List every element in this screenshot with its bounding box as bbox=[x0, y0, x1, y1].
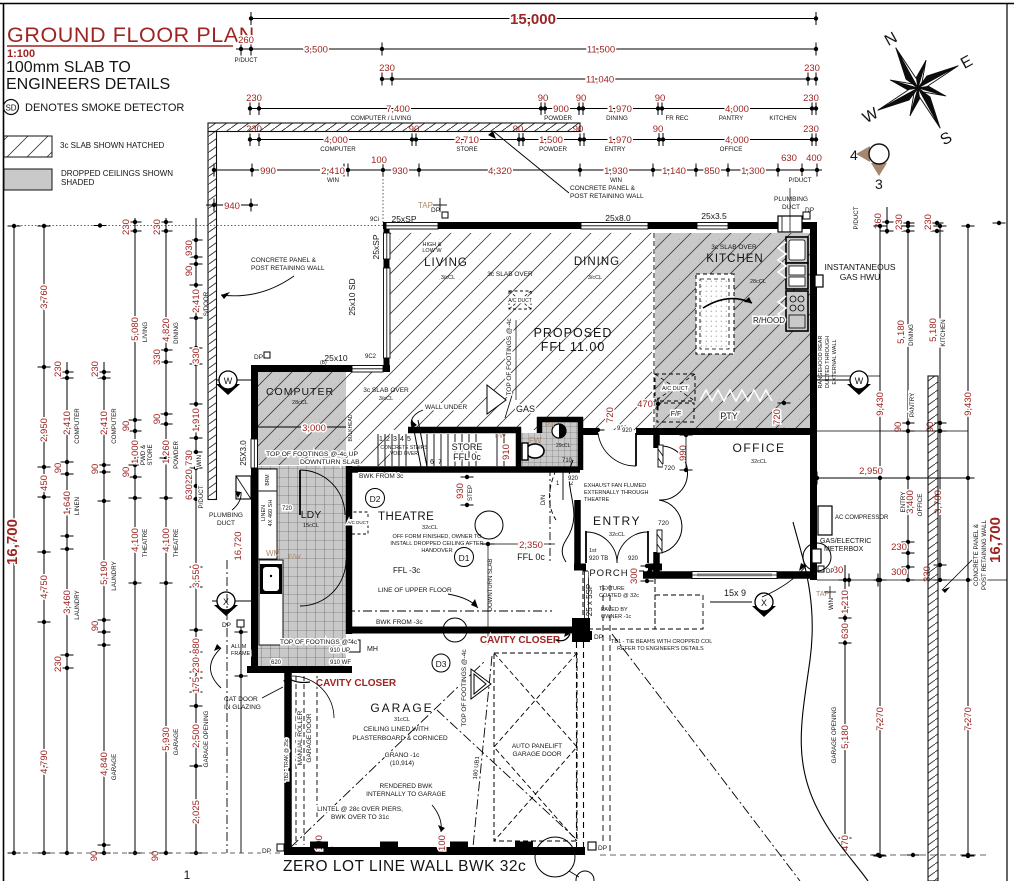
svg-text:WIN: WIN bbox=[327, 177, 339, 184]
svg-text:DUCT: DUCT bbox=[217, 520, 235, 527]
svg-text:OFFICE: OFFICE bbox=[733, 441, 786, 455]
svg-text:TOP OF FOOTINGS @-4c UP: TOP OF FOOTINGS @-4c UP bbox=[266, 451, 358, 458]
svg-text:6: 6 bbox=[430, 459, 434, 466]
svg-text:5,180: 5,180 bbox=[896, 320, 907, 344]
svg-text:WIN: WIN bbox=[828, 598, 835, 610]
svg-text:9Ci: 9Ci bbox=[370, 217, 379, 223]
svg-text:630: 630 bbox=[184, 484, 195, 500]
svg-text:25xSP: 25xSP bbox=[391, 214, 416, 224]
svg-text:230: 230 bbox=[121, 219, 132, 235]
svg-text:GAS/ELECTRIC: GAS/ELECTRIC bbox=[820, 538, 871, 545]
svg-text:ENTRY: ENTRY bbox=[605, 146, 626, 153]
svg-text:LINEN: LINEN bbox=[74, 497, 81, 515]
svg-text:GARAGE: GARAGE bbox=[111, 754, 118, 780]
svg-text:DP: DP bbox=[805, 207, 814, 214]
svg-text:2,350: 2,350 bbox=[519, 540, 543, 551]
svg-text:90: 90 bbox=[152, 414, 163, 425]
svg-text:90: 90 bbox=[89, 851, 100, 862]
svg-text:W: W bbox=[855, 376, 864, 386]
svg-text:90: 90 bbox=[538, 93, 549, 104]
svg-text:BWK FROM 3c: BWK FROM 3c bbox=[359, 473, 404, 480]
svg-text:7,400: 7,400 bbox=[386, 104, 410, 115]
svg-text:E: E bbox=[958, 53, 976, 73]
svg-text:28cCL: 28cCL bbox=[750, 279, 766, 285]
svg-text:5: 5 bbox=[407, 436, 411, 443]
svg-text:1,300: 1,300 bbox=[741, 166, 765, 177]
svg-text:GRANO -1c: GRANO -1c bbox=[385, 752, 420, 759]
svg-text:7: 7 bbox=[438, 459, 442, 466]
svg-text:2,950: 2,950 bbox=[39, 418, 50, 442]
svg-text:930: 930 bbox=[184, 240, 195, 256]
svg-text:5,080: 5,080 bbox=[130, 317, 141, 341]
svg-text:7,270: 7,270 bbox=[875, 707, 886, 731]
svg-text:3: 3 bbox=[875, 176, 883, 192]
svg-text:X: X bbox=[223, 597, 229, 607]
svg-text:1,910: 1,910 bbox=[191, 408, 202, 432]
svg-text:FFL 0c: FFL 0c bbox=[453, 452, 481, 462]
svg-text:CONCRETE PANEL &: CONCRETE PANEL & bbox=[570, 185, 636, 192]
svg-text:ZERO LOT LINE WALL BWK 32c: ZERO LOT LINE WALL BWK 32c bbox=[283, 858, 526, 875]
svg-text:THEATRE: THEATRE bbox=[173, 529, 180, 557]
svg-text:3,500: 3,500 bbox=[304, 45, 328, 56]
svg-text:15x 9: 15x 9 bbox=[724, 588, 746, 598]
svg-text:9C2: 9C2 bbox=[365, 354, 377, 360]
svg-text:LIVING: LIVING bbox=[142, 322, 149, 342]
svg-text:CAVITY CLOSER: CAVITY CLOSER bbox=[316, 678, 397, 689]
svg-text:POST RETAINING WALL: POST RETAINING WALL bbox=[251, 265, 325, 272]
svg-text:910 WF: 910 WF bbox=[330, 660, 351, 666]
svg-text:11,500: 11,500 bbox=[587, 45, 615, 56]
svg-text:450: 450 bbox=[39, 475, 50, 491]
svg-text:TB2 - TRAK @ 25c: TB2 - TRAK @ 25c bbox=[284, 738, 290, 781]
svg-text:POST RETAINING WALL: POST RETAINING WALL bbox=[981, 519, 988, 590]
svg-text:90: 90 bbox=[655, 93, 666, 104]
svg-text:D/N: D/N bbox=[541, 495, 547, 505]
svg-text:TOP OF FOOTINGS @-4c: TOP OF FOOTINGS @-4c bbox=[461, 649, 468, 727]
svg-text:25x3.5: 25x3.5 bbox=[701, 211, 727, 221]
svg-text:RENDERED BWK: RENDERED BWK bbox=[379, 783, 433, 790]
svg-text:(B): (B) bbox=[320, 360, 327, 366]
svg-text:INSTALL DROPPED CEILING AFTER: INSTALL DROPPED CEILING AFTER bbox=[390, 541, 483, 547]
svg-text:FR REC: FR REC bbox=[665, 115, 689, 122]
svg-text:DP: DP bbox=[598, 845, 607, 852]
svg-text:11,040: 11,040 bbox=[586, 75, 614, 86]
svg-text:4,000: 4,000 bbox=[725, 135, 749, 146]
svg-text:3: 3 bbox=[393, 436, 397, 443]
svg-text:PLUMBING: PLUMBING bbox=[774, 196, 808, 203]
svg-text:GROUND FLOOR PLAN: GROUND FLOOR PLAN bbox=[7, 23, 255, 47]
svg-text:230: 230 bbox=[90, 361, 101, 377]
svg-text:DP: DP bbox=[254, 354, 263, 361]
svg-text:230: 230 bbox=[804, 63, 820, 74]
svg-text:CONCRETE PANEL &: CONCRETE PANEL & bbox=[973, 523, 980, 586]
svg-text:32cCL: 32cCL bbox=[609, 532, 625, 538]
svg-text:OFFICE: OFFICE bbox=[720, 146, 743, 153]
svg-text:LDY: LDY bbox=[301, 509, 321, 521]
svg-text:3c SLAB OVER: 3c SLAB OVER bbox=[711, 244, 757, 251]
svg-text:230: 230 bbox=[152, 219, 163, 235]
svg-text:920 TB: 920 TB bbox=[589, 556, 608, 562]
svg-text:920: 920 bbox=[628, 556, 639, 562]
svg-text:15cCL: 15cCL bbox=[303, 523, 319, 529]
svg-text:90: 90 bbox=[576, 93, 587, 104]
svg-text:PAVED BY: PAVED BY bbox=[601, 607, 628, 613]
svg-text:DP: DP bbox=[262, 848, 271, 855]
svg-text:5,190: 5,190 bbox=[99, 561, 110, 585]
svg-text:720: 720 bbox=[772, 409, 783, 425]
svg-text:4,000: 4,000 bbox=[725, 104, 749, 115]
svg-text:1,970: 1,970 bbox=[608, 135, 632, 146]
svg-text:COATED @ 32c: COATED @ 32c bbox=[599, 593, 639, 599]
svg-text:3,000: 3,000 bbox=[302, 423, 326, 434]
svg-text:2,410: 2,410 bbox=[191, 289, 202, 313]
svg-text:OFFICE: OFFICE bbox=[917, 494, 924, 517]
svg-text:PANTRY: PANTRY bbox=[909, 393, 916, 418]
svg-text:4,820: 4,820 bbox=[161, 318, 172, 342]
svg-text:REFER TO ENGINEER'S DETAILS: REFER TO ENGINEER'S DETAILS bbox=[617, 646, 704, 652]
svg-text:D1: D1 bbox=[459, 553, 470, 563]
svg-text:90: 90 bbox=[53, 463, 64, 474]
svg-text:DOWNTURN SLAB: DOWNTURN SLAB bbox=[488, 559, 494, 612]
svg-text:1,140: 1,140 bbox=[662, 166, 686, 177]
svg-text:25 x 5SP: 25 x 5SP bbox=[585, 584, 594, 616]
svg-text:470: 470 bbox=[637, 399, 653, 410]
svg-text:PTY: PTY bbox=[720, 411, 738, 421]
svg-text:BWK OVER TO 31c: BWK OVER TO 31c bbox=[331, 814, 390, 821]
svg-text:X: X bbox=[761, 598, 767, 608]
svg-text:3c SLAB OVER: 3c SLAB OVER bbox=[363, 387, 409, 394]
svg-text:15,000: 15,000 bbox=[510, 11, 556, 28]
svg-text:BRM: BRM bbox=[265, 474, 271, 485]
svg-text:2,950: 2,950 bbox=[859, 466, 883, 477]
svg-text:LINE OF UPPER FLOOR: LINE OF UPPER FLOOR bbox=[378, 587, 452, 594]
svg-text:1: 1 bbox=[379, 436, 383, 443]
svg-text:FFL 11.00: FFL 11.00 bbox=[541, 340, 606, 354]
svg-text:DINING: DINING bbox=[606, 115, 628, 122]
svg-text:PROPOSED: PROPOSED bbox=[534, 326, 613, 340]
svg-text:STORE: STORE bbox=[147, 444, 154, 465]
svg-text:90: 90 bbox=[150, 851, 161, 862]
svg-text:3,550: 3,550 bbox=[191, 564, 202, 588]
svg-text:THEATRE: THEATRE bbox=[378, 511, 434, 523]
svg-text:DUCT: DUCT bbox=[782, 204, 800, 211]
svg-text:ALUM: ALUM bbox=[231, 644, 247, 650]
svg-text:P/DUCT: P/DUCT bbox=[853, 206, 860, 229]
svg-text:LAUNDRY: LAUNDRY bbox=[111, 561, 118, 590]
svg-text:1st: 1st bbox=[589, 548, 597, 554]
svg-text:630: 630 bbox=[840, 623, 851, 639]
svg-text:D3: D3 bbox=[436, 659, 447, 669]
svg-text:GARAGE DOOR: GARAGE DOOR bbox=[512, 751, 561, 758]
svg-text:16,700: 16,700 bbox=[987, 517, 1004, 563]
svg-text:DROPPED CEILINGS SHOWN: DROPPED CEILINGS SHOWN bbox=[61, 169, 173, 178]
svg-text:DP: DP bbox=[431, 207, 440, 214]
svg-text:230: 230 bbox=[803, 93, 819, 104]
svg-text:90: 90 bbox=[121, 421, 132, 432]
svg-text:880: 880 bbox=[191, 638, 202, 654]
svg-text:16,700: 16,700 bbox=[4, 519, 21, 565]
svg-text:COMPUTER: COMPUTER bbox=[266, 386, 334, 398]
svg-text:ENGINEERS DETAILS: ENGINEERS DETAILS bbox=[6, 76, 170, 93]
svg-text:2,410: 2,410 bbox=[62, 411, 73, 435]
svg-text:930: 930 bbox=[455, 483, 466, 499]
svg-text:4: 4 bbox=[400, 436, 404, 443]
svg-text:THEATRE: THEATRE bbox=[142, 529, 149, 557]
svg-text:25xSP: 25xSP bbox=[371, 234, 381, 259]
svg-text:DENOTES SMOKE DETECTOR: DENOTES SMOKE DETECTOR bbox=[25, 102, 184, 114]
svg-text:4,840: 4,840 bbox=[99, 752, 110, 776]
svg-text:D2: D2 bbox=[370, 494, 381, 504]
svg-text:300: 300 bbox=[629, 568, 640, 584]
svg-text:A/C DUCT: A/C DUCT bbox=[508, 298, 532, 304]
svg-text:230: 230 bbox=[379, 63, 395, 74]
svg-text:230: 230 bbox=[891, 542, 907, 553]
svg-text:260: 260 bbox=[238, 35, 254, 46]
svg-text:2: 2 bbox=[386, 436, 390, 443]
svg-text:A/C DUCT: A/C DUCT bbox=[662, 386, 689, 392]
svg-text:910 UP: 910 UP bbox=[330, 648, 350, 654]
svg-text:POWDER: POWDER bbox=[173, 441, 180, 469]
svg-text:920: 920 bbox=[568, 476, 579, 482]
svg-text:HANDOVER: HANDOVER bbox=[421, 548, 452, 554]
svg-text:920: 920 bbox=[622, 428, 633, 434]
svg-text:3,460: 3,460 bbox=[62, 590, 73, 614]
svg-text:90: 90 bbox=[90, 464, 101, 475]
svg-text:LINEN: LINEN bbox=[261, 505, 267, 521]
svg-text:720: 720 bbox=[658, 520, 669, 527]
svg-text:3/cCL: 3/cCL bbox=[441, 275, 455, 281]
svg-text:9,430: 9,430 bbox=[875, 392, 886, 416]
svg-text:PLASTERBOARD & CORNICED: PLASTERBOARD & CORNICED bbox=[352, 735, 448, 742]
svg-text:5,930: 5,930 bbox=[161, 727, 172, 751]
svg-text:F/W: F/W bbox=[288, 554, 301, 561]
svg-text:KITCHEN: KITCHEN bbox=[940, 319, 947, 346]
svg-text:940: 940 bbox=[224, 201, 240, 212]
svg-text:2,500: 2,500 bbox=[191, 724, 202, 748]
svg-text:F/F: F/F bbox=[671, 411, 682, 418]
svg-text:POWDER: POWDER bbox=[539, 146, 567, 153]
svg-text:EXHAUST FAN FLUMED: EXHAUST FAN FLUMED bbox=[584, 483, 646, 489]
svg-text:KITCHEN: KITCHEN bbox=[769, 115, 796, 122]
svg-text:230: 230 bbox=[191, 657, 202, 673]
svg-text:1,930: 1,930 bbox=[604, 166, 628, 177]
svg-text:GAS HWU: GAS HWU bbox=[840, 272, 881, 282]
svg-text:4,750: 4,750 bbox=[39, 575, 50, 599]
svg-text:1,500: 1,500 bbox=[539, 135, 563, 146]
svg-text:VOID OVER: VOID OVER bbox=[390, 451, 418, 457]
svg-text:LOW W: LOW W bbox=[422, 248, 442, 254]
svg-text:1,260: 1,260 bbox=[161, 440, 172, 464]
svg-text:RW: RW bbox=[545, 423, 555, 429]
svg-text:P/DUCT: P/DUCT bbox=[234, 57, 257, 64]
svg-text:OWNER -1c: OWNER -1c bbox=[601, 614, 632, 620]
svg-text:EXTERNAL WALL: EXTERNAL WALL bbox=[832, 339, 838, 384]
svg-text:710: 710 bbox=[562, 458, 573, 464]
svg-text:3c SLAB SHOWN HATCHED: 3c SLAB SHOWN HATCHED bbox=[60, 141, 165, 150]
svg-text:INTERNALLY TO GARAGE: INTERNALLY TO GARAGE bbox=[366, 791, 446, 798]
svg-text:COMPUTER: COMPUTER bbox=[74, 408, 81, 444]
svg-text:PANTRY: PANTRY bbox=[719, 115, 744, 122]
svg-text:620: 620 bbox=[271, 660, 282, 666]
svg-text:DP: DP bbox=[826, 569, 834, 575]
svg-text:330: 330 bbox=[191, 348, 202, 364]
svg-text:25x10 SD: 25x10 SD bbox=[347, 278, 357, 315]
svg-text:930: 930 bbox=[392, 166, 408, 177]
svg-text:3c SLAB OVER: 3c SLAB OVER bbox=[487, 271, 533, 278]
svg-text:EXTERNALLY THROUGH: EXTERNALLY THROUGH bbox=[584, 490, 649, 496]
svg-text:2,410: 2,410 bbox=[321, 166, 345, 177]
svg-text:100: 100 bbox=[371, 155, 387, 166]
svg-text:SD: SD bbox=[5, 104, 16, 113]
svg-text:RANGEHOOD REAR: RANGEHOOD REAR bbox=[818, 336, 824, 389]
svg-text:OFF FORM FINISHED, OWNER TO: OFF FORM FINISHED, OWNER TO bbox=[392, 534, 482, 540]
svg-text:COMPUTER / LIVING: COMPUTER / LIVING bbox=[351, 115, 412, 122]
svg-text:7,270: 7,270 bbox=[963, 707, 974, 731]
svg-text:1,970: 1,970 bbox=[608, 104, 632, 115]
svg-text:S: S bbox=[938, 129, 956, 149]
svg-text:230: 230 bbox=[246, 93, 262, 104]
svg-text:CEILING LINED WITH: CEILING LINED WITH bbox=[363, 726, 429, 733]
svg-text:5,180: 5,180 bbox=[840, 725, 851, 749]
svg-text:PWD &: PWD & bbox=[140, 444, 147, 465]
svg-text:SHADED: SHADED bbox=[61, 178, 95, 187]
svg-text:90: 90 bbox=[184, 266, 195, 277]
svg-text:CONCRETE PANEL &: CONCRETE PANEL & bbox=[251, 257, 317, 264]
svg-text:LIVING: LIVING bbox=[424, 257, 468, 269]
svg-text:990: 990 bbox=[260, 166, 276, 177]
svg-text:2,410: 2,410 bbox=[99, 411, 110, 435]
svg-text:AUTO PANELIFT: AUTO PANELIFT bbox=[512, 743, 562, 750]
svg-text:BWK FROM -3c: BWK FROM -3c bbox=[376, 619, 423, 626]
svg-text:THEATRE: THEATRE bbox=[584, 497, 610, 503]
svg-text:850: 850 bbox=[704, 166, 720, 177]
svg-text:25x10: 25x10 bbox=[324, 353, 347, 363]
svg-text:720: 720 bbox=[282, 506, 293, 512]
svg-text:16,720: 16,720 bbox=[233, 531, 244, 560]
svg-text:230: 230 bbox=[53, 361, 64, 377]
svg-text:P/DUCT: P/DUCT bbox=[788, 177, 811, 184]
svg-text:DOWNTURN SLAB: DOWNTURN SLAB bbox=[300, 459, 360, 466]
svg-text:WIN: WIN bbox=[610, 177, 622, 184]
svg-text:3,400: 3,400 bbox=[905, 490, 916, 514]
svg-text:DINING: DINING bbox=[173, 322, 180, 344]
svg-text:5,180: 5,180 bbox=[928, 318, 939, 342]
svg-text:4,100: 4,100 bbox=[130, 528, 141, 552]
svg-text:730: 730 bbox=[184, 450, 195, 466]
svg-text:32cCL: 32cCL bbox=[422, 525, 438, 531]
svg-text:WALL UNDER: WALL UNDER bbox=[425, 404, 467, 411]
svg-text:PLUMBING: PLUMBING bbox=[209, 512, 243, 519]
svg-text:2,710: 2,710 bbox=[455, 135, 479, 146]
svg-text:WIN: WIN bbox=[196, 455, 203, 467]
svg-text:GARAGE OPENING: GARAGE OPENING bbox=[203, 710, 210, 767]
svg-text:1: 1 bbox=[184, 868, 191, 881]
svg-text:4: 4 bbox=[850, 147, 858, 163]
svg-text:9,430: 9,430 bbox=[963, 392, 974, 416]
svg-text:PORCH: PORCH bbox=[589, 568, 628, 579]
svg-text:330: 330 bbox=[152, 349, 163, 365]
svg-text:4,000: 4,000 bbox=[324, 135, 348, 146]
svg-text:POST RETAINING WALL: POST RETAINING WALL bbox=[570, 193, 644, 200]
svg-text:CAVITY CLOSER: CAVITY CLOSER bbox=[480, 635, 561, 646]
svg-text:990: 990 bbox=[678, 445, 689, 461]
svg-text:230: 230 bbox=[894, 214, 905, 230]
svg-text:4X 460 SH: 4X 460 SH bbox=[268, 500, 274, 527]
svg-text:4,100: 4,100 bbox=[161, 528, 172, 552]
svg-text:90: 90 bbox=[121, 467, 132, 478]
svg-text:32cCL: 32cCL bbox=[751, 459, 767, 465]
svg-text:MH: MH bbox=[367, 646, 378, 653]
svg-text:175: 175 bbox=[191, 677, 202, 693]
svg-text:28cCL: 28cCL bbox=[292, 400, 308, 406]
svg-text:230: 230 bbox=[803, 124, 819, 135]
svg-text:(10,914): (10,914) bbox=[390, 760, 414, 767]
svg-text:COMPUTER: COMPUTER bbox=[111, 408, 118, 444]
svg-text:900: 900 bbox=[553, 104, 569, 115]
svg-text:1,210: 1,210 bbox=[840, 590, 851, 614]
svg-text:FFL 0c: FFL 0c bbox=[517, 552, 545, 562]
svg-text:TOP OF FOOTINGS @-4c: TOP OF FOOTINGS @-4c bbox=[280, 639, 358, 646]
svg-text:720: 720 bbox=[605, 407, 616, 423]
svg-text:25x8.0: 25x8.0 bbox=[605, 213, 631, 223]
svg-text:220: 220 bbox=[184, 469, 195, 485]
svg-text:TOP OF FOOTINGS @-4c: TOP OF FOOTINGS @-4c bbox=[506, 318, 513, 396]
svg-text:FFL -3c: FFL -3c bbox=[393, 566, 420, 575]
svg-text:4,790: 4,790 bbox=[39, 750, 50, 774]
svg-text:LAUNDRY: LAUNDRY bbox=[74, 590, 81, 619]
svg-text:1,640: 1,640 bbox=[62, 491, 73, 515]
svg-text:31cCL: 31cCL bbox=[394, 717, 410, 723]
svg-text:DP: DP bbox=[594, 634, 603, 641]
svg-text:GARAGE DOOR: GARAGE DOOR bbox=[306, 713, 313, 762]
svg-text:910: 910 bbox=[501, 444, 512, 460]
svg-text:FW: FW bbox=[495, 433, 506, 440]
svg-text:GARAGE OPENING: GARAGE OPENING bbox=[831, 706, 838, 763]
svg-text:230: 230 bbox=[923, 214, 934, 230]
svg-text:630: 630 bbox=[781, 153, 797, 164]
svg-text:29cCL: 29cCL bbox=[556, 443, 571, 449]
svg-text:DINING: DINING bbox=[908, 324, 915, 346]
svg-text:LINTEL @ 28c OVER PIERS,: LINTEL @ 28c OVER PIERS, bbox=[317, 806, 403, 813]
svg-text:MANUAL ROLLER: MANUAL ROLLER bbox=[297, 710, 304, 765]
svg-text:GARAGE: GARAGE bbox=[370, 701, 433, 715]
svg-text:2,025: 2,025 bbox=[191, 800, 202, 824]
svg-text:BULKHEAD: BULKHEAD bbox=[348, 414, 354, 441]
svg-text:90: 90 bbox=[653, 124, 664, 135]
svg-text:90: 90 bbox=[90, 621, 101, 632]
svg-text:A/C DUCT: A/C DUCT bbox=[347, 520, 369, 525]
svg-text:DINING: DINING bbox=[574, 256, 620, 268]
svg-text:25X3.0: 25X3.0 bbox=[239, 440, 248, 466]
svg-text:1: 1 bbox=[556, 481, 560, 487]
svg-text:300: 300 bbox=[891, 567, 907, 578]
svg-text:IN GLAZING: IN GLAZING bbox=[224, 704, 261, 711]
svg-text:COMPUTER: COMPUTER bbox=[320, 146, 356, 153]
svg-text:4,320: 4,320 bbox=[488, 166, 512, 177]
svg-text:3/cCL: 3/cCL bbox=[379, 396, 393, 402]
svg-text:STORE: STORE bbox=[452, 442, 483, 452]
svg-text:100: 100 bbox=[437, 835, 448, 851]
svg-text:100mm SLAB TO: 100mm SLAB TO bbox=[6, 59, 131, 76]
svg-text:180 UB1: 180 UB1 bbox=[473, 755, 481, 780]
svg-text:3,760: 3,760 bbox=[39, 285, 50, 309]
svg-text:ENTRY: ENTRY bbox=[593, 514, 641, 528]
svg-text:230: 230 bbox=[53, 656, 64, 672]
svg-text:STORE: STORE bbox=[456, 146, 477, 153]
svg-text:GAS: GAS bbox=[516, 404, 535, 414]
svg-text:R/HOOD: R/HOOD bbox=[753, 316, 785, 325]
svg-text:INSTANTANEOUS: INSTANTANEOUS bbox=[825, 262, 896, 272]
